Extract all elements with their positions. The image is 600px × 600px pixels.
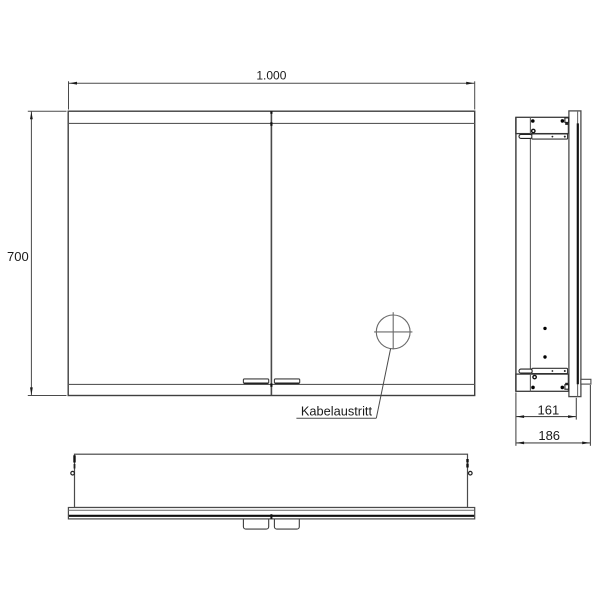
svg-text:700: 700	[7, 249, 29, 264]
svg-text:186: 186	[538, 428, 560, 443]
svg-text:1.000: 1.000	[256, 69, 286, 83]
svg-text:Kabelaustritt: Kabelaustritt	[301, 404, 373, 419]
svg-text:161: 161	[538, 403, 560, 418]
